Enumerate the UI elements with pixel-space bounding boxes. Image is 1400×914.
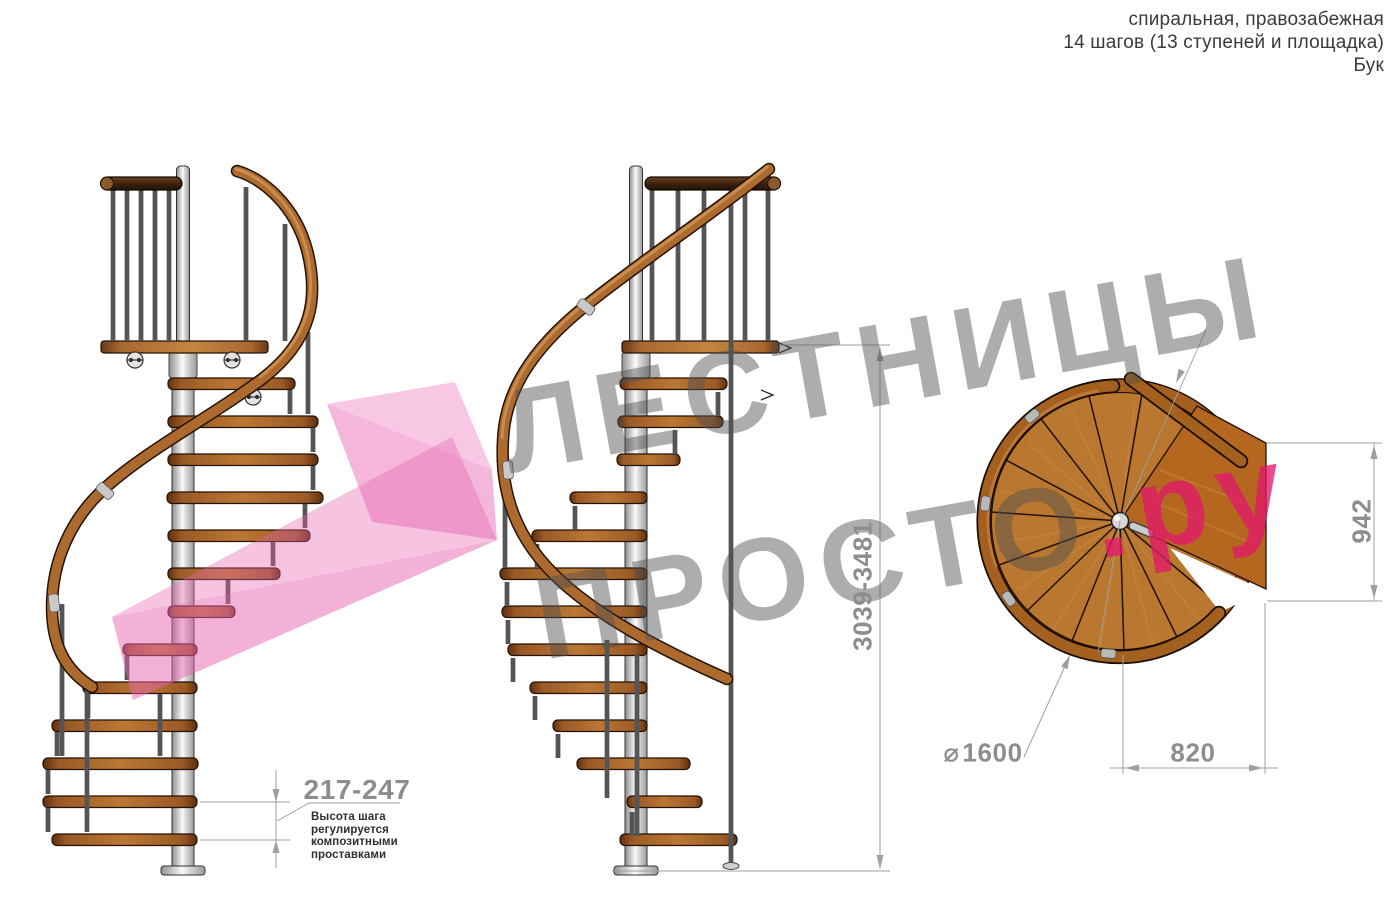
dim-diameter-label: ⌀ 1600 [943,738,1022,769]
product-spec-header: спиральная, правозабежная 14 шагов (13 с… [1063,8,1384,77]
dim-total-height-label: 3039-3481 [848,521,879,651]
diameter-value: 1600 [962,738,1022,768]
diameter-symbol: ⌀ [943,738,959,768]
step-height-note: Высота шага регулируется композитными пр… [311,811,398,861]
plan-view [978,379,1266,663]
technical-drawing-svg [0,0,1400,914]
center-steps [500,378,737,846]
staircase-drawing-page: ЛЕСТНИЦЫ ПРОСТО.ру спиральная, правозабе… [0,0,1400,914]
dim-landing-depth-label: 942 [1347,498,1378,543]
spec-type: спиральная, правозабежная [1063,8,1384,31]
dim-step-length-label: 820 [1170,738,1215,769]
dim-step-height-label: 217-247 [304,774,411,806]
spec-material: Бук [1063,54,1384,77]
left-elevation-view [43,166,323,875]
center-elevation-view [500,166,791,875]
spec-steps: 14 шагов (13 ступеней и площадка) [1063,31,1384,54]
